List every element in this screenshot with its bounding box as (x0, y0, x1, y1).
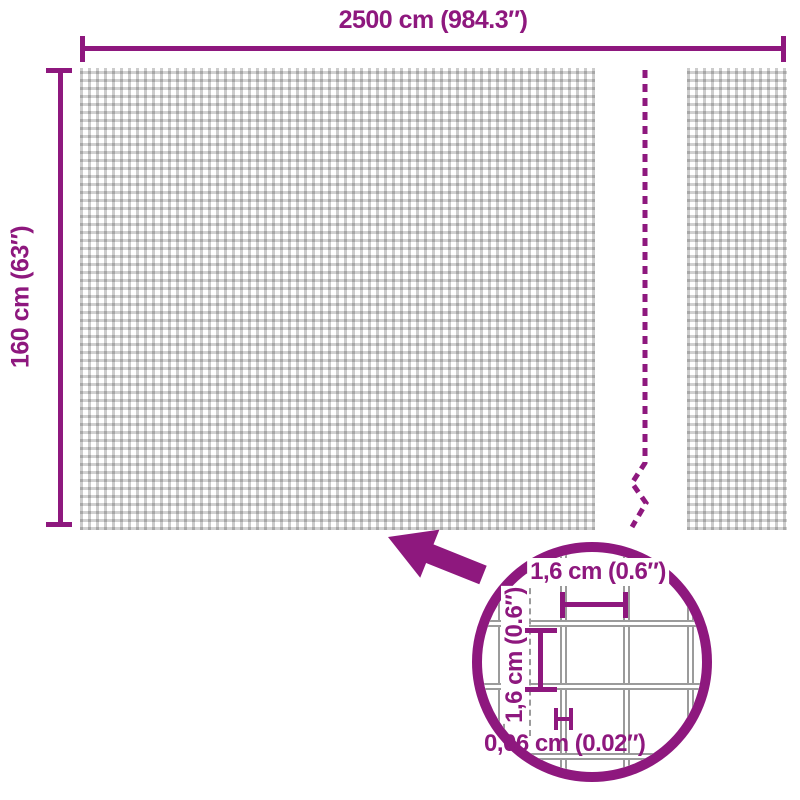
mesh-wire-vertical (687, 547, 694, 777)
zoom-arrow-icon (388, 530, 487, 585)
product-dimension-diagram: 2500 cm (984.3″) 160 cm (63″) 1,6 cm (0.… (0, 0, 800, 800)
detail-mesh-width-cap-right (623, 592, 628, 618)
wire-thickness-marker-bridge (554, 717, 573, 721)
detail-mesh-height-line (538, 628, 543, 692)
width-dimension-line (80, 46, 786, 51)
height-dimension-end-cap-bottom (46, 522, 72, 527)
height-dimension-label: 160 cm (63″) (7, 226, 36, 368)
mesh-panel-right (687, 68, 787, 530)
detail-mesh-width-label: 1,6 cm (0.6″) (527, 558, 669, 586)
wire-thickness-label: 0,06 cm (0.02″) (484, 730, 645, 758)
width-dimension-end-cap-left (80, 36, 85, 62)
detail-mesh-height-label: 1,6 cm (0.6″) (501, 586, 529, 724)
width-dimension-end-cap-right (781, 36, 786, 62)
extension-line-dashed (529, 578, 531, 736)
detail-mesh-height-cap-top (525, 628, 557, 633)
width-dimension-label: 2500 cm (984.3″) (339, 6, 528, 35)
height-dimension-end-cap-top (46, 68, 72, 73)
detail-mesh-width-line (560, 602, 628, 607)
mesh-panel-main (80, 68, 595, 530)
break-dashed-line-icon (632, 70, 646, 527)
height-dimension-line (58, 68, 63, 527)
detail-mesh-width-cap-left (560, 592, 565, 618)
detail-mesh-height-cap-bottom (525, 687, 557, 692)
